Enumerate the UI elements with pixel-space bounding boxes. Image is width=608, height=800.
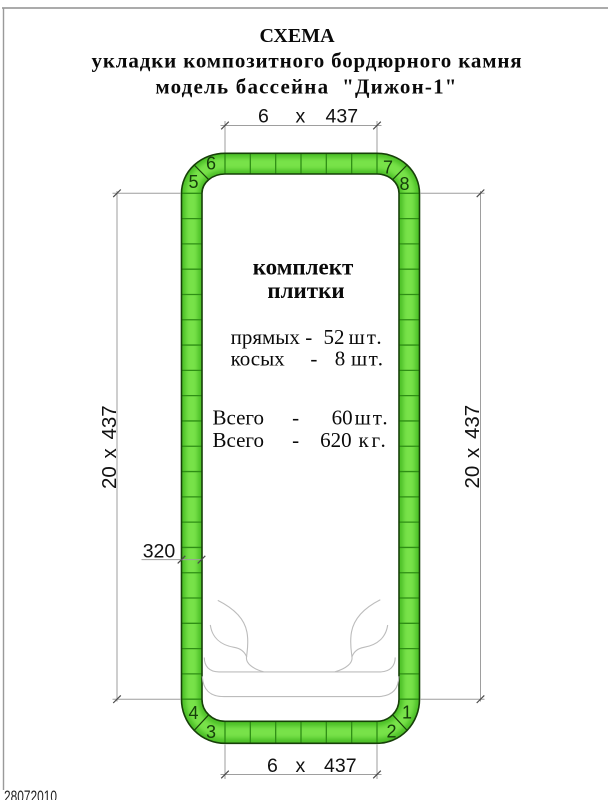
svg-text:6: 6: [267, 755, 278, 777]
svg-text:20: 20: [98, 466, 121, 489]
svg-text:плитки: плитки: [267, 278, 344, 303]
svg-text:x: x: [461, 447, 484, 458]
svg-text:-: -: [305, 325, 312, 349]
svg-text:1: 1: [402, 703, 412, 723]
svg-text:-: -: [310, 346, 317, 370]
svg-text:модель бассейна "Дижон-1": модель бассейна "Дижон-1": [155, 75, 457, 99]
svg-text:-: -: [292, 406, 299, 430]
svg-text:3: 3: [206, 722, 216, 742]
svg-text:6: 6: [258, 105, 269, 127]
svg-text:x: x: [296, 105, 306, 127]
svg-text:52: 52: [324, 325, 345, 349]
svg-text:6: 6: [206, 154, 216, 174]
svg-text:437: 437: [326, 105, 359, 127]
svg-text:8: 8: [399, 174, 409, 194]
svg-text:2: 2: [386, 721, 396, 741]
svg-text:Всего: Всего: [213, 406, 265, 430]
svg-text:укладки композитного бордюрног: укладки композитного бордюрного камня: [92, 49, 523, 73]
svg-text:320: 320: [143, 541, 176, 563]
svg-text:x: x: [296, 755, 306, 777]
svg-text:620: 620: [320, 428, 352, 452]
svg-text:шт.: шт.: [355, 406, 390, 430]
svg-text:20: 20: [461, 466, 484, 489]
svg-text:x: x: [98, 448, 121, 459]
svg-text:шт.: шт.: [351, 346, 385, 370]
svg-text:Всего: Всего: [213, 428, 265, 452]
svg-text:7: 7: [383, 158, 393, 178]
svg-text:28072010: 28072010: [4, 787, 57, 800]
svg-text:8: 8: [335, 346, 346, 370]
svg-text:шт.: шт.: [349, 325, 384, 349]
svg-text:-: -: [292, 428, 299, 452]
svg-text:437: 437: [461, 405, 484, 439]
svg-text:кг.: кг.: [359, 428, 389, 452]
svg-text:4: 4: [188, 703, 198, 723]
svg-text:прямых: прямых: [231, 325, 301, 349]
svg-text:СХЕМА: СХЕМА: [259, 25, 335, 47]
svg-text:косых: косых: [231, 346, 286, 370]
svg-text:60: 60: [332, 406, 353, 430]
svg-text:5: 5: [188, 172, 198, 192]
svg-text:437: 437: [98, 405, 121, 439]
svg-text:комплект: комплект: [253, 254, 354, 279]
svg-text:437: 437: [324, 755, 357, 777]
